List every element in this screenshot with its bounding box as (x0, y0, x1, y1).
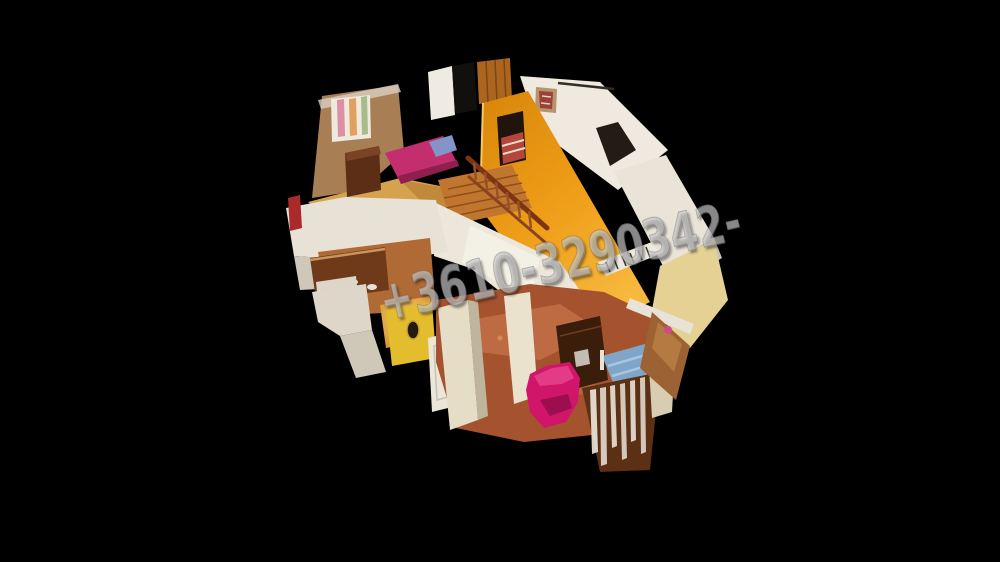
radiator (288, 195, 302, 231)
picture-detail (542, 96, 551, 97)
curtain-streak (600, 387, 607, 466)
bed-post (600, 350, 604, 370)
lit-door-panel (428, 66, 455, 120)
curtain-stripe-green (361, 96, 368, 135)
curtain-streak (640, 377, 646, 454)
curtain-streak (630, 380, 636, 442)
dollhouse-model[interactable] (0, 0, 1000, 562)
curtain-stripe-orange (349, 98, 357, 136)
pink-object (664, 326, 672, 334)
dish (367, 284, 377, 290)
viewer-canvas[interactable]: +3610-3290342- (0, 0, 1000, 562)
stove-door (574, 349, 590, 367)
oval-picture (407, 321, 419, 339)
dark-doorway (452, 62, 477, 114)
curtain-stripe-pink (337, 99, 345, 137)
floor-highlight (498, 336, 503, 341)
picture-detail (541, 103, 550, 104)
picture-art (539, 91, 553, 109)
